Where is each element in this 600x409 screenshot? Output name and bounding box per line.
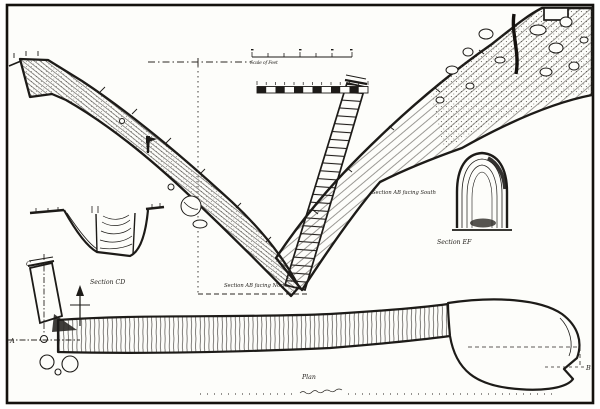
section-ab-north-label: Section AB facing North bbox=[224, 283, 288, 289]
point-label-a: A bbox=[9, 337, 15, 345]
excavation-drawing: Scale of Feet bbox=[0, 0, 600, 409]
scale-caption: Scale of Feet bbox=[250, 60, 278, 66]
point-label-b: B bbox=[585, 364, 591, 372]
plan-label: Plan bbox=[301, 374, 316, 381]
engraving-plate: Scale of Feet bbox=[0, 0, 600, 409]
section-ef-label: Section EF bbox=[437, 239, 472, 246]
section-cd-label: Section CD bbox=[90, 279, 125, 286]
section-ab-south-label: Section AB facing South bbox=[372, 190, 436, 196]
